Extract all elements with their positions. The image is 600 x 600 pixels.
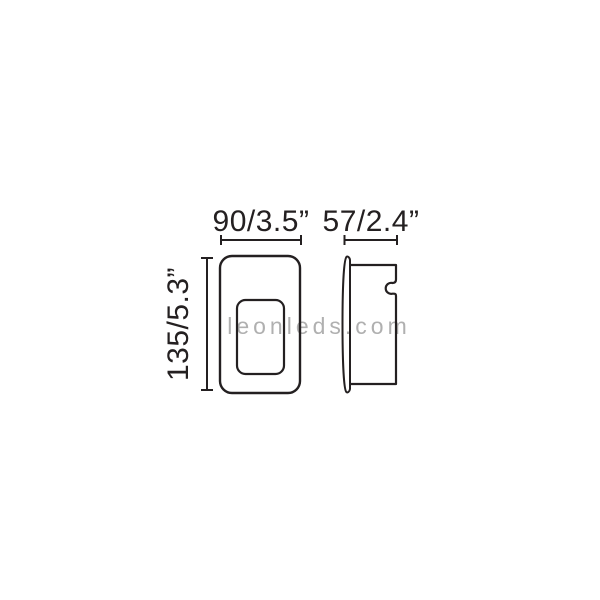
dim-line-front-height <box>201 258 213 390</box>
watermark-text: leonleds.com <box>227 313 411 339</box>
dim-label-front-width: 90/3.5” <box>213 205 310 238</box>
dim-label-front-height: 135/5.3” <box>162 267 195 381</box>
product-dimension-diagram: leonleds.com <box>0 0 600 600</box>
dim-labels-group: 90/3.5” 57/2.4” 135/5.3” <box>162 205 419 381</box>
dim-label-side-depth: 57/2.4” <box>323 205 420 238</box>
